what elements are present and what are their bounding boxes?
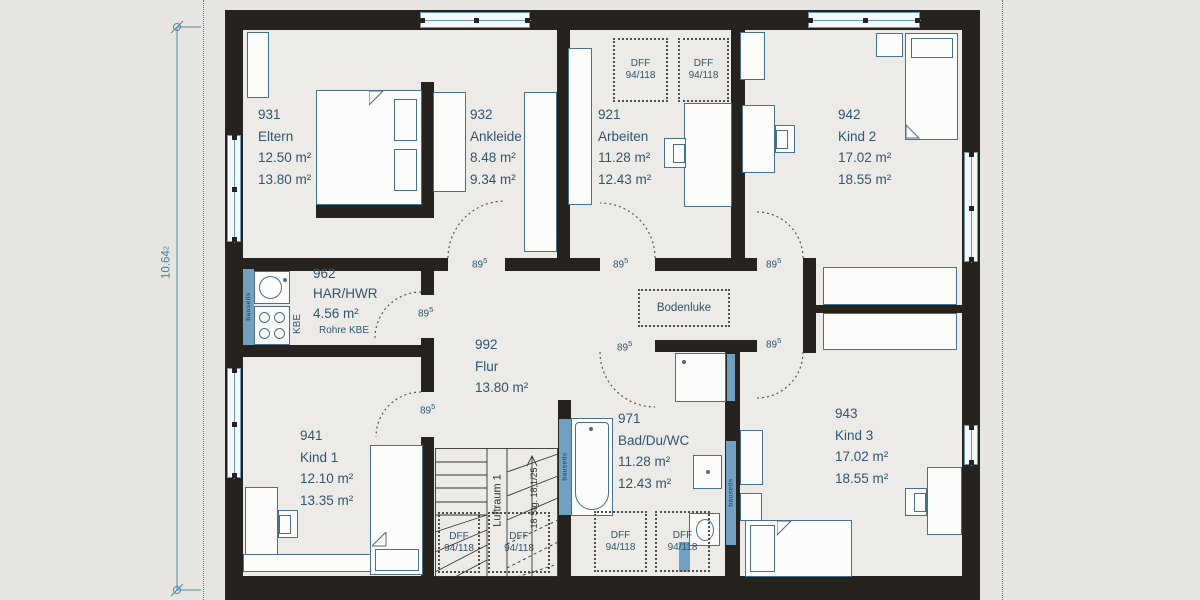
room-label-eltern: 931Eltern 12.50 m²13.80 m² <box>258 104 311 190</box>
nightstand-kind2 <box>876 33 903 57</box>
bathtub <box>571 418 613 516</box>
room-label-ankleide: 932Ankleide 8.48 m²9.34 m² <box>470 104 522 190</box>
wall-kind2-kind3 <box>816 305 962 313</box>
door-width-label: 895 <box>418 305 433 319</box>
wall-flur-west-stub <box>421 352 434 392</box>
wardrobe-kind2 <box>823 267 957 305</box>
onsite-strip-shower <box>727 354 735 401</box>
bed-eltern <box>316 90 422 205</box>
blanket-fold <box>777 521 793 537</box>
closet-kind3 <box>740 430 763 485</box>
dimension-line <box>171 21 201 596</box>
wardrobe-kind3 <box>823 313 957 350</box>
room-label-kind1: 941Kind 1 12.10 m²13.35 m² <box>300 425 353 511</box>
extension-line-left <box>203 0 204 600</box>
window <box>964 152 978 262</box>
roof-window-box: DFF94/118 <box>594 511 647 572</box>
bed-kind3 <box>745 520 852 577</box>
chair-kind1 <box>278 510 298 538</box>
stair-spec-label: 18 Stg. 18,1/25 <box>527 454 541 542</box>
pillow <box>911 38 953 58</box>
chair-kind2 <box>775 125 795 153</box>
kbe-label: KBE <box>290 300 304 348</box>
washing-machine <box>254 271 290 304</box>
wall-har-south <box>243 345 421 357</box>
closet-ankleide-left <box>433 92 466 192</box>
onsite-label: bauseits <box>243 279 254 334</box>
roof-window-box: DFF94/118 <box>438 512 480 573</box>
wall-bottom <box>225 576 980 600</box>
door-width-label: 895 <box>766 336 781 350</box>
wall-flur-east <box>803 258 816 353</box>
floor-hatch-box: Bodenluke <box>638 289 730 327</box>
nightstand-kind3 <box>740 493 762 521</box>
wall-bad-north <box>655 340 757 352</box>
room-label-arbeiten: 921Arbeiten 11.28 m²12.43 m² <box>598 104 651 190</box>
onsite-label: bauseits <box>726 466 737 520</box>
washbasin <box>693 455 722 489</box>
dimension-value: 10.642 <box>159 231 174 295</box>
shelf-arbeiten <box>568 48 592 205</box>
bed-kind1 <box>370 445 423 575</box>
wall-left <box>225 10 243 590</box>
wall-bed-back <box>316 205 434 218</box>
window <box>227 135 241 242</box>
room-label-bad: 971Bad/Du/WC 11.28 m²12.43 m² <box>618 408 689 494</box>
door-width-label: 895 <box>420 402 435 416</box>
pillow <box>394 99 417 141</box>
wall-corridor-b <box>505 258 600 271</box>
desk-arbeiten <box>684 103 732 207</box>
roof-window-box: DFF94/118 <box>613 38 668 102</box>
desk-kind2 <box>742 105 775 173</box>
window <box>227 368 241 478</box>
window <box>808 12 920 28</box>
closet-kind2 <box>740 32 765 80</box>
door-width-label: 895 <box>766 256 781 270</box>
blanket-fold <box>372 532 388 548</box>
extension-line-right <box>1002 0 1003 600</box>
chair-kind3 <box>905 488 927 516</box>
shower <box>675 353 726 402</box>
pillow <box>375 549 419 571</box>
chair-arbeiten <box>664 138 686 168</box>
closet-ankleide-right <box>524 92 557 252</box>
door-width-label: 895 <box>613 256 628 270</box>
floor-plan-canvas: DFF94/118 DFF94/118 DFF94/118 DFF94/118 … <box>0 0 1200 600</box>
room-label-kind2: 942Kind 2 17.02 m²18.55 m² <box>838 104 891 190</box>
window <box>420 12 530 28</box>
pillow <box>394 149 417 191</box>
blanket-fold <box>369 91 385 107</box>
wall-corridor-c <box>655 258 757 271</box>
room-label-hwr: 962HAR/HWR 4.56 m²Rohre KBE <box>313 264 378 337</box>
hwr-unit <box>254 306 290 345</box>
bed-kind2 <box>905 33 958 140</box>
pillow <box>750 525 775 572</box>
wardrobe-eltern <box>247 32 269 98</box>
roof-window-box: DFF94/118 <box>655 511 710 572</box>
room-label-flur: 992Flur 13.80 m² <box>475 334 528 399</box>
door-width-label: 895 <box>617 339 632 353</box>
onsite-label: bauseits <box>560 439 571 495</box>
wall-right <box>962 10 980 590</box>
roof-window-box: DFF94/118 <box>678 38 729 102</box>
window <box>964 425 978 465</box>
desk-kind3 <box>927 467 962 535</box>
blanket-fold <box>906 123 922 139</box>
room-label-kind3: 943Kind 3 17.02 m²18.55 m² <box>835 403 888 489</box>
void-label: Luftraum 1 <box>490 455 505 547</box>
desk-kind1 <box>245 487 278 557</box>
door-width-label: 895 <box>472 256 487 270</box>
wall-har-east-upper <box>421 271 434 295</box>
sideboard-kind1 <box>243 554 371 572</box>
